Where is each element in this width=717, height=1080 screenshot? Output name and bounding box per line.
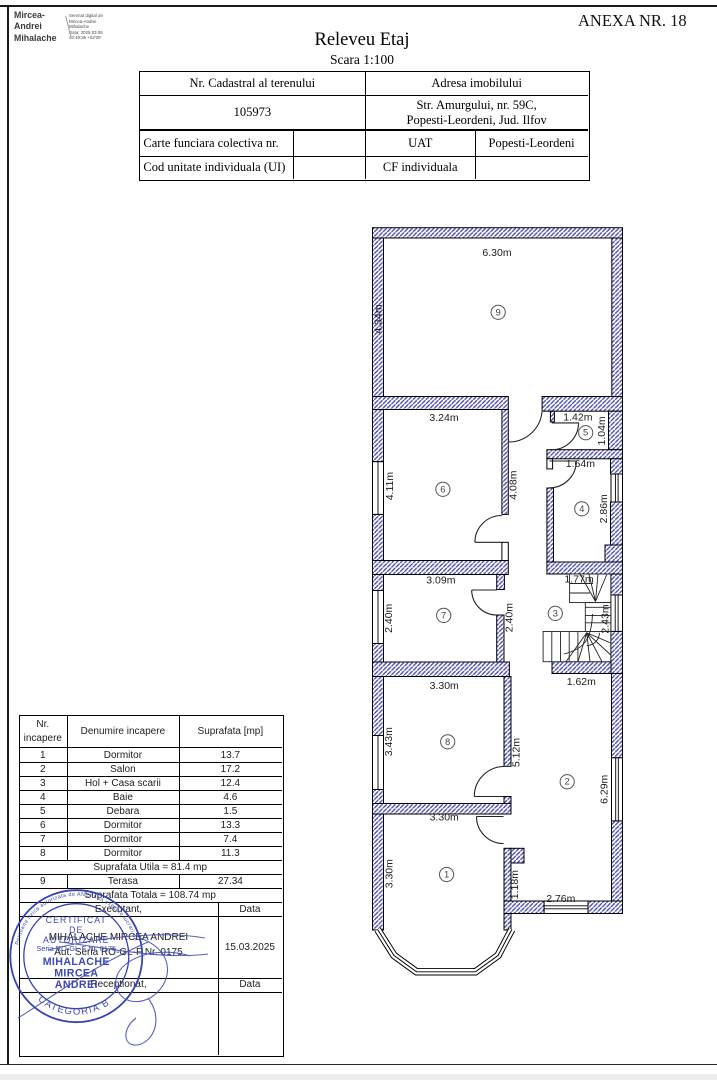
svg-text:3.30m: 3.30m xyxy=(383,859,395,888)
svg-text:4: 4 xyxy=(579,504,584,515)
svg-text:3: 3 xyxy=(553,608,558,619)
svg-text:1.42m: 1.42m xyxy=(563,411,592,423)
svg-text:4.34m: 4.34m xyxy=(372,304,384,333)
svg-text:1: 1 xyxy=(444,870,449,881)
svg-text:1.77m: 1.77m xyxy=(564,573,593,585)
svg-text:5: 5 xyxy=(583,428,588,439)
svg-text:3.30m: 3.30m xyxy=(430,680,459,692)
svg-text:3.24m: 3.24m xyxy=(429,412,458,424)
svg-text:MIRCEA: MIRCEA xyxy=(54,968,98,980)
svg-text:3.43m: 3.43m xyxy=(383,727,395,756)
svg-text:5.12m: 5.12m xyxy=(511,738,523,767)
svg-text:7: 7 xyxy=(441,610,446,621)
svg-text:2: 2 xyxy=(565,777,570,788)
svg-text:2.86m: 2.86m xyxy=(598,494,610,523)
svg-text:CERTIFICAT: CERTIFICAT xyxy=(46,915,107,925)
svg-text:2.40m: 2.40m xyxy=(503,603,515,632)
svg-text:9: 9 xyxy=(496,307,501,318)
svg-text:3.09m: 3.09m xyxy=(426,575,455,587)
svg-text:3.30m: 3.30m xyxy=(430,812,459,824)
svg-text:6: 6 xyxy=(440,484,445,495)
svg-text:2.76m: 2.76m xyxy=(546,893,575,905)
svg-text:4.08m: 4.08m xyxy=(507,470,519,499)
svg-text:1.04m: 1.04m xyxy=(596,416,608,445)
svg-text:6.30m: 6.30m xyxy=(482,247,511,259)
svg-text:1.62m: 1.62m xyxy=(567,676,596,688)
svg-text:4.11m: 4.11m xyxy=(384,472,396,501)
svg-text:2.40m: 2.40m xyxy=(383,603,395,632)
svg-text:8: 8 xyxy=(445,737,450,748)
svg-text:2.43m: 2.43m xyxy=(600,604,612,633)
svg-text:1.64m: 1.64m xyxy=(566,458,595,470)
svg-text:1.18m: 1.18m xyxy=(509,870,521,899)
svg-text:CATEGORIA B: CATEGORIA B xyxy=(36,993,111,1017)
svg-text:6.29m: 6.29m xyxy=(598,774,610,803)
svg-text:DE: DE xyxy=(69,925,83,935)
